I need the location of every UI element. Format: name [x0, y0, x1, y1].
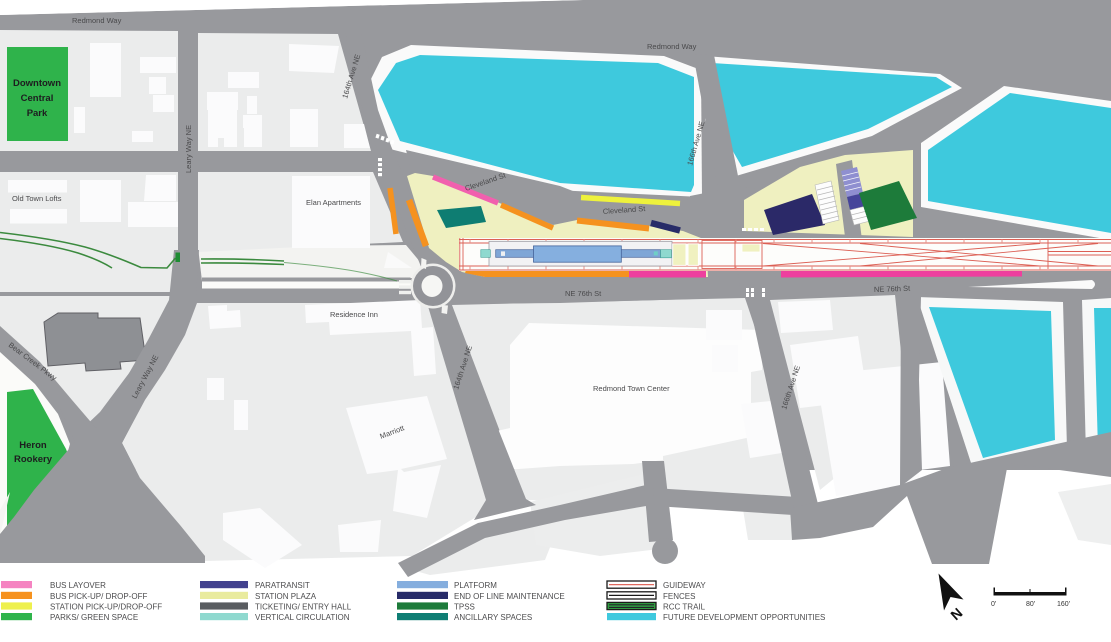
svg-text:BUS PICK-UP/ DROP-OFF: BUS PICK-UP/ DROP-OFF [50, 592, 147, 601]
svg-text:STATION PLAZA: STATION PLAZA [255, 592, 317, 601]
svg-text:STATION PICK-UP/DROP-OFF: STATION PICK-UP/DROP-OFF [50, 602, 162, 611]
svg-text:Redmond Town Center: Redmond Town Center [593, 384, 670, 393]
svg-text:PARKS/ GREEN SPACE: PARKS/ GREEN SPACE [50, 613, 138, 622]
svg-text:TPSS: TPSS [454, 602, 475, 611]
svg-text:FUTURE DEVELOPMENT OPPORTUNITI: FUTURE DEVELOPMENT OPPORTUNITIES [663, 613, 825, 622]
svg-text:Central: Central [21, 93, 54, 104]
svg-text:Leary Way NE: Leary Way NE [184, 125, 193, 173]
svg-text:END OF LINE MAINTENANCE: END OF LINE MAINTENANCE [454, 592, 565, 601]
svg-text:NE 76th St: NE 76th St [874, 284, 911, 294]
svg-text:Old Town Lofts: Old Town Lofts [12, 194, 62, 203]
svg-text:Redmond Way: Redmond Way [647, 42, 697, 51]
svg-text:TICKETING/ ENTRY HALL: TICKETING/ ENTRY HALL [255, 602, 352, 611]
svg-text:80': 80' [1026, 601, 1035, 608]
svg-text:PARATRANSIT: PARATRANSIT [255, 581, 310, 590]
svg-text:PLATFORM: PLATFORM [454, 581, 497, 590]
svg-text:0': 0' [991, 601, 996, 608]
svg-text:Downtown: Downtown [13, 78, 61, 89]
svg-text:FENCES: FENCES [663, 592, 695, 601]
svg-text:ANCILLARY SPACES: ANCILLARY SPACES [454, 613, 532, 622]
svg-text:NE 76th St: NE 76th St [565, 289, 602, 298]
svg-text:Park: Park [27, 108, 48, 119]
svg-text:Redmond Way: Redmond Way [72, 16, 122, 25]
svg-text:BUS LAYOVER: BUS LAYOVER [50, 581, 106, 590]
svg-text:RCC TRAIL: RCC TRAIL [663, 602, 706, 611]
svg-text:Residence Inn: Residence Inn [330, 310, 378, 319]
svg-text:VERTICAL CIRCULATION: VERTICAL CIRCULATION [255, 613, 350, 622]
svg-text:Heron: Heron [19, 440, 47, 451]
svg-text:GUIDEWAY: GUIDEWAY [663, 581, 706, 590]
svg-text:160': 160' [1057, 601, 1070, 608]
svg-text:Rookery: Rookery [14, 454, 53, 465]
svg-text:Elan Apartments: Elan Apartments [306, 198, 361, 207]
